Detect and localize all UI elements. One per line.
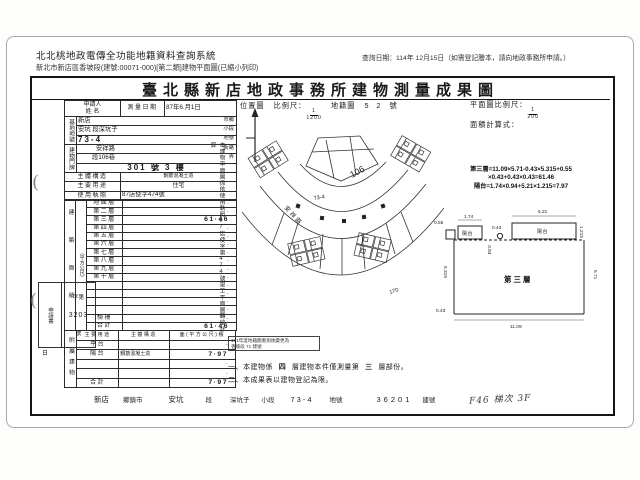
survey-date-label: 測量日期 [121,101,165,117]
annex-structure [119,340,169,350]
address-number-floor: 301 號 3 樓 [127,163,185,172]
application-label: 申請書 [46,307,54,324]
annex-area: · [169,369,235,379]
note1-suffix: 層部份。 [378,364,408,371]
dim-small-balcony-width: 1.74 [464,214,474,220]
floor-name: 第十層 [87,273,123,281]
handwritten-paren-mark: ( [30,290,37,311]
area-formula-label: 面積計算式： [470,120,539,131]
application-receipt-box: 申請書 字第 3203 號 [38,282,96,348]
footer-subsection-label: 小段 [262,394,275,404]
small-balcony-label: 陽台 [462,230,473,237]
annex-structure [119,378,169,388]
site-row: 新店市鄉 [77,117,237,126]
footer-town-label: 鄉鎮市 [123,394,143,404]
dim-right-height: 5.71 [592,270,598,280]
cadastral-sheet-label: 地籍圖 [331,101,356,110]
structure-label: 主體構造 [65,172,121,181]
applicant-cell: 申請人 姓 名 [65,101,121,117]
floor-name: 第二層 [87,208,123,216]
dim-bottom-width: 11.09 [510,324,522,330]
floor-plan-drawing: 1.74 0.55 0.94 0.43 5.21 1.215 5.315 5.7… [432,202,606,332]
note1-mid: 層建物本件僅測量第 [292,364,360,371]
floor-name: 第九層 [87,265,123,273]
floor-name: 第八層 [87,257,123,265]
survey-date-value: 87年6.月1日 [165,101,237,117]
dim-large-balcony-depth: 1.215 [578,226,584,238]
address-label: 建物門牌 [65,144,77,172]
annex-structure: 鋼筋混凝土造 [119,350,169,360]
address-lane: 段106巷 [92,154,115,161]
note1-measured-floor: 三 [362,362,376,372]
note-1: 一、本建物係 四 層建物本件僅測量第 三 層部份。 [228,362,408,372]
plan-scale-fraction: 1200 [527,108,539,120]
annex-use-total: 合計 [77,378,119,388]
floor-name: 地面層 [87,200,123,208]
footer-parcel-strip: 新店 鄉鎮市 安坑 段 深坑子 小段 73-4 地號 36201 建號 F46 … [66,392,606,405]
system-title: 北北桃地政電傳全功能地籍資料查詢系統 [36,48,216,62]
applicant-label-2: 姓 名 [66,109,119,115]
site-row: 安坑 段深坑子小段 [77,126,237,135]
document-subtitle: 新北市新店區香坡段(建號:00071-000)[第二類]建物平面圖(已縮小列印) [36,63,258,73]
site-lot-label: 基地地號 [65,117,77,145]
annex-use [77,359,119,369]
footer-section-value: 安坑 [169,394,184,405]
calc-line-2: ×0.43+0.43×0.43=61.46 [434,174,608,182]
application-no-suffix: 號 [76,329,82,337]
room-label-third-floor: 第三層 [504,274,533,284]
location-scale-fraction: 11200 [306,109,322,121]
footer-town-value: 新店 [94,394,109,405]
transcription-side-note: 本建物平面圖係依使用執照87店使字第474號竣工平面圖轉繪計算 [208,142,226,337]
handwritten-paren-mark: ( [32,172,39,193]
footer-section-label: 段 [206,394,213,404]
footer-handwritten-annotation: F46 梯次 3F [469,390,532,406]
calc-line-3: 陽台=1.74×0.94+5.21×1.215=7.97 [434,183,608,191]
note-2: 二、本成果表以建物登記為限。 [228,375,333,385]
use-label: 主要用途 [65,182,121,191]
document-title: 臺北縣新店地政事務所建物測量成果圖 [30,79,611,100]
resurvey-stamp: 101年度地籍圖重測後變更為 香坡段 71 建號 [228,336,320,351]
site-section: 安坑 段深坑子 [78,126,118,133]
annex-structure [119,369,169,379]
site-city: 新店 [78,117,91,124]
footer-lot-label: 地號 [330,394,343,404]
scale-denominator: 1200 [306,116,322,122]
floor-name: 第七層 [87,249,123,257]
note1-prefix: 一、本建物係 [228,364,273,371]
location-map-drawing: 106 73-4 安祥路 170 [238,122,444,328]
application-no-prefix: 字第 [73,293,84,301]
floor-name: 第五層 [87,232,123,240]
note1-floor-count: 四 [275,362,289,372]
address-lane-unit: 弄 [229,155,235,161]
plan-scale-denominator: 200 [527,115,539,121]
plan-scale-header: 平面圖比例尺：1200 面積計算式： [470,100,539,131]
dim-gap: 0.43 [492,225,502,231]
address-street: 安祥路 [96,145,115,152]
dim-bottom-notch: 0.43 [436,308,446,314]
footer-subsection-value: 深坑子 [230,394,250,404]
map-lot-number: 73-4 [313,194,325,202]
query-date: 查詢日期：114年 12月15日（如需登記謄本，請向地政事務所申請。） [362,52,570,62]
footer-building-label: 建號 [422,394,435,404]
floor-name: 第六層 [87,240,123,248]
site-section-unit: 小段 [223,127,235,133]
plan-scale-label: 平面圖比例尺： [470,100,527,109]
calc-line-1: 第三層=11.09×5.71-0.43×5.315+0.55 [434,166,608,174]
cadastral-sheet-unit: 號 [389,101,397,110]
dim-left-height: 5.315 [442,266,448,278]
annex-area: · [169,359,235,369]
floor-name: 第四層 [87,224,123,232]
footer-building-number: 36201 [377,395,413,404]
location-scale-label: 比例尺： [274,101,307,110]
floor-name: 第三層 [87,216,123,224]
annex-structure [119,359,169,369]
dim-notch-left: 0.55 [434,220,444,226]
cadastral-sheet-number: 5 2 [364,101,383,110]
annex-header-structure: 主體構造 [119,331,169,341]
application-date-label: 日 [42,348,48,357]
site-lot-unit: 地號 [223,136,235,142]
dim-small-balcony-depth: 0.94 [486,245,492,255]
area-calculation: 第三層=11.09×5.71-0.43×5.315+0.55 ×0.43+0.4… [434,166,608,191]
application-number: 3203 [69,312,89,319]
annex-area: · [169,340,235,350]
site-city-unit: 市鄉 [223,118,235,124]
site-lot-number: 73-4 [78,135,102,144]
annex-area-total: 7·97 [169,378,235,388]
footer-lot-value: 73-4 [291,395,314,404]
stamp-line-2: 香坡段 71 建號 [231,344,317,350]
annex-area-balcony: 7·97 [169,350,235,360]
large-balcony-label: 陽台 [537,228,548,235]
map-lane-number: 106 [348,164,366,180]
map-road-name: 安祥路 [283,204,305,227]
map-outer-number: 170 [389,287,400,296]
dim-large-balcony-width: 5.21 [538,209,548,215]
annex-use [77,369,119,379]
annex-use-balcony: 陽台 [77,350,119,360]
